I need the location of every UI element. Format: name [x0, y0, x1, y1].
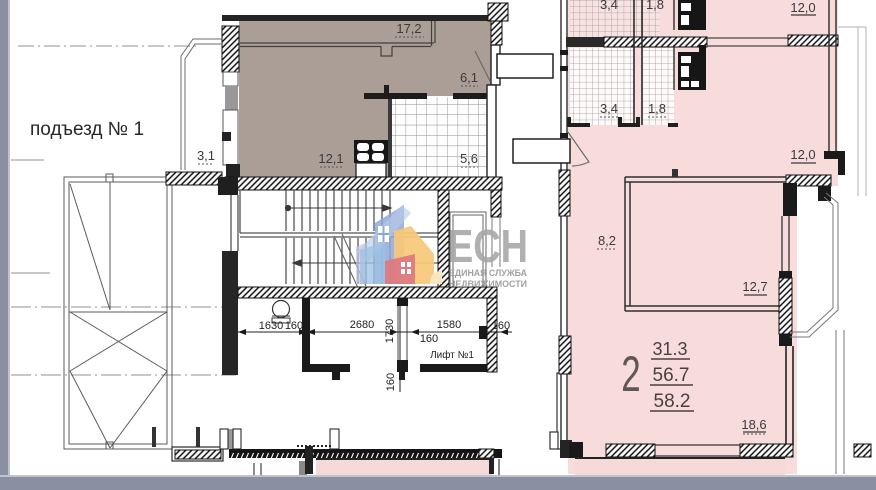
svg-text:подъезд № 1: подъезд № 1: [30, 119, 144, 140]
svg-text:56.7: 56.7: [653, 365, 690, 386]
svg-text:18,6: 18,6: [741, 417, 766, 432]
svg-text:3,1: 3,1: [197, 148, 215, 163]
svg-text:8,2: 8,2: [598, 233, 616, 248]
svg-text:НЕДВИЖИМОСТИ: НЕДВИЖИМОСТИ: [449, 279, 527, 290]
svg-text:Лифт №1: Лифт №1: [430, 349, 474, 361]
svg-text:1730: 1730: [384, 319, 396, 343]
svg-text:6,1: 6,1: [460, 70, 478, 85]
svg-text:12,0: 12,0: [790, 147, 815, 162]
svg-text:17,2: 17,2: [396, 21, 421, 36]
svg-text:2: 2: [621, 347, 640, 403]
svg-text:ЕДИНАЯ СЛУЖБА: ЕДИНАЯ СЛУЖБА: [449, 268, 527, 279]
svg-text:12,0: 12,0: [790, 0, 815, 15]
svg-text:1580: 1580: [437, 319, 461, 331]
svg-text:3,4: 3,4: [600, 101, 618, 116]
svg-text:ЕСН: ЕСН: [448, 220, 528, 272]
svg-text:160: 160: [385, 373, 397, 391]
svg-text:160: 160: [285, 320, 303, 332]
svg-text:2680: 2680: [350, 319, 374, 331]
svg-text:31.3: 31.3: [652, 339, 687, 359]
svg-text:160: 160: [420, 333, 438, 345]
svg-text:3,4: 3,4: [600, 0, 618, 12]
svg-text:5,6: 5,6: [460, 151, 478, 166]
svg-text:58.2: 58.2: [654, 391, 691, 412]
svg-text:1,8: 1,8: [648, 101, 666, 116]
svg-text:12,7: 12,7: [742, 279, 767, 294]
svg-text:12,1: 12,1: [318, 151, 343, 166]
svg-text:160: 160: [492, 320, 510, 332]
svg-text:1630: 1630: [259, 320, 283, 332]
svg-text:1,8: 1,8: [646, 0, 664, 12]
